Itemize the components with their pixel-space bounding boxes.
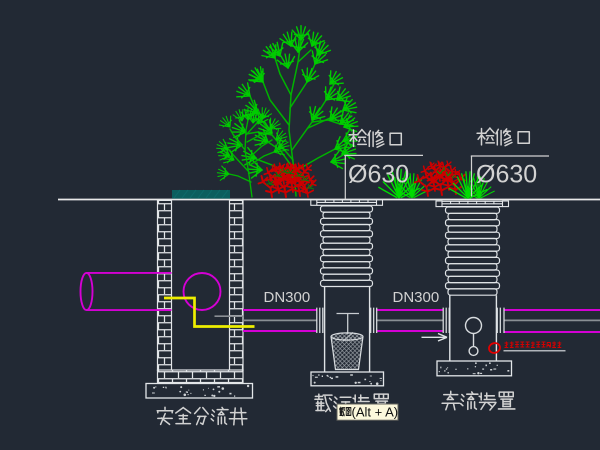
svg-text:Ø630: Ø630 [476,161,537,189]
svg-text:Ø630: Ø630 [348,161,409,189]
svg-text:DN300: DN300 [264,289,311,306]
svg-text:DN300: DN300 [393,289,440,306]
svg-text:(Alt + A): (Alt + A) [352,405,399,420]
